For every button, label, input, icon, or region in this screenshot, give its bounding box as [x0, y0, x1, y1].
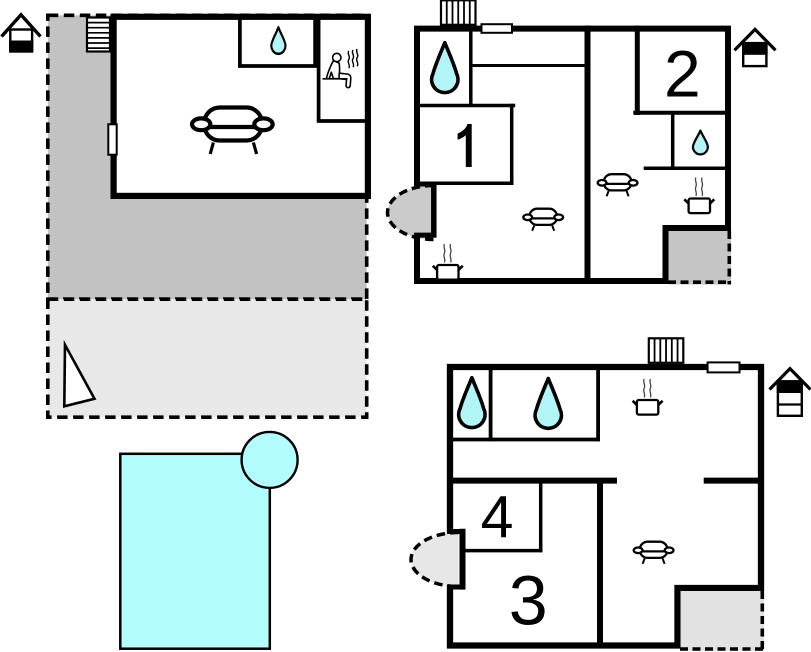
svg-text:4: 4	[481, 485, 514, 551]
svg-text:3: 3	[509, 561, 548, 639]
svg-text:2: 2	[664, 37, 701, 111]
